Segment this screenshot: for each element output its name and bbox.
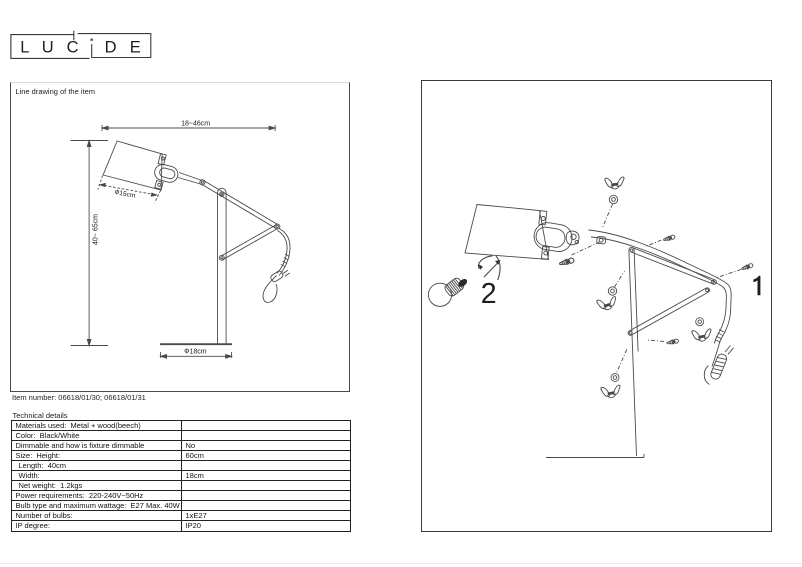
svg-text:Ф18cm: Ф18cm bbox=[184, 349, 207, 356]
svg-text:U: U bbox=[42, 39, 54, 57]
svg-text:C: C bbox=[67, 39, 79, 57]
svg-text:L: L bbox=[20, 39, 29, 57]
svg-text:D: D bbox=[105, 39, 117, 57]
svg-text:E: E bbox=[130, 39, 141, 57]
svg-text:18~46cm: 18~46cm bbox=[181, 121, 210, 128]
svg-text:2: 2 bbox=[481, 278, 497, 310]
svg-text:40~ 65cm: 40~ 65cm bbox=[93, 214, 100, 245]
